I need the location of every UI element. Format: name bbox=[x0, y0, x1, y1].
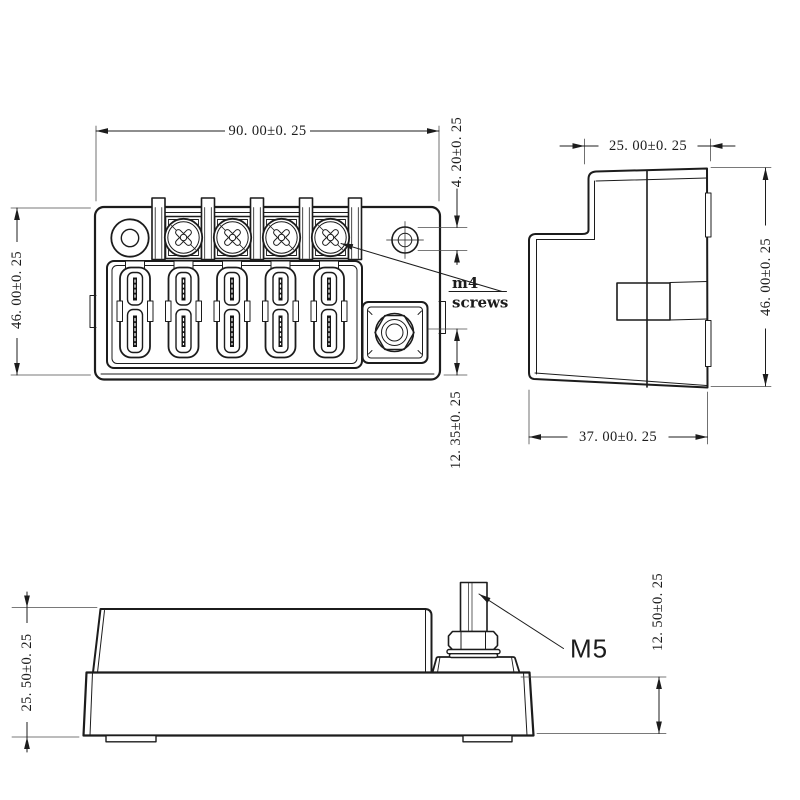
dim-text-side-top-width: 25. 00±0. 25 bbox=[609, 138, 687, 154]
dim-text-front-height: 46. 00±0. 25 bbox=[9, 251, 25, 329]
label-m5-stud: M5 bbox=[570, 634, 608, 664]
fuse-slot-2 bbox=[166, 261, 202, 358]
m4-screw bbox=[311, 218, 349, 256]
fuse-slot-5 bbox=[311, 261, 347, 358]
base-foot-left bbox=[106, 736, 156, 742]
paper-background bbox=[0, 0, 800, 800]
dim-text-side-bottom-width: 37. 00±0. 25 bbox=[579, 429, 657, 445]
divider-post bbox=[349, 198, 362, 260]
hex-nut-profile bbox=[449, 632, 498, 650]
technical-drawing-page: 90. 00±0. 25 46. 00±0. 25 4. 20±0. 25 12… bbox=[0, 0, 800, 800]
dim-text-front-width: 90. 00±0. 25 bbox=[228, 123, 306, 139]
fuse-slot-1 bbox=[117, 261, 153, 358]
base-foot-right bbox=[463, 736, 512, 742]
divider-post bbox=[251, 198, 264, 260]
stud-washer-lower bbox=[450, 654, 498, 658]
m4-screw bbox=[262, 218, 300, 256]
divider-post bbox=[300, 198, 313, 260]
fuse-slot-4 bbox=[263, 261, 299, 358]
divider-post bbox=[152, 198, 165, 260]
divider-post bbox=[202, 198, 215, 260]
m4-screw bbox=[213, 218, 251, 256]
m5-stud bbox=[461, 583, 488, 632]
dim-text-stud-to-bottom: 12. 35±0. 25 bbox=[448, 391, 464, 469]
dim-text-side-height: 46. 00±0. 25 bbox=[758, 238, 774, 316]
fuse-box-drawing: 90. 00±0. 25 46. 00±0. 25 4. 20±0. 25 12… bbox=[0, 0, 800, 800]
stud-pedestal bbox=[433, 657, 520, 673]
side-right-tab-upper bbox=[706, 193, 712, 237]
side-right-tab-lower bbox=[706, 321, 712, 367]
fuse-slot-3 bbox=[214, 261, 250, 358]
note-m4-line2: screws bbox=[452, 294, 508, 312]
note-m4-line1: m4 bbox=[452, 274, 478, 292]
dim-text-profile-height: 25. 50±0. 25 bbox=[19, 633, 35, 711]
m4-screw bbox=[164, 218, 202, 256]
dim-text-screw-hole: 4. 20±0. 25 bbox=[449, 117, 465, 187]
dim-text-base-height: 12. 50±0. 25 bbox=[650, 573, 666, 651]
